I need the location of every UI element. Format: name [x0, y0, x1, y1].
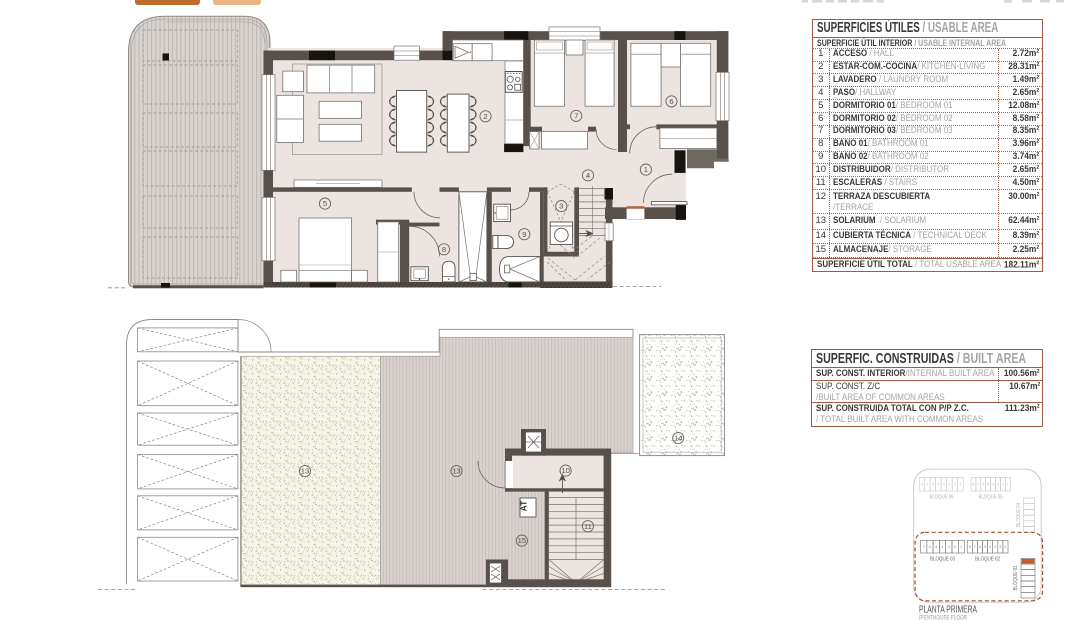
svg-text:3: 3 [994, 545, 996, 549]
svg-text:3: 3 [949, 483, 951, 487]
svg-text:15: 15 [518, 536, 526, 545]
svg-text:(PENTHOUSE FLOOR: (PENTHOUSE FLOOR [919, 615, 967, 620]
svg-text:8: 8 [969, 545, 971, 549]
svg-text:7: 7 [974, 545, 976, 549]
svg-text:2: 2 [1002, 483, 1004, 487]
svg-text:5: 5 [938, 483, 940, 487]
svg-text:8: 8 [973, 483, 975, 487]
svg-text:13: 13 [452, 467, 460, 476]
svg-text:5: 5 [935, 545, 937, 549]
svg-text:5: 5 [323, 199, 327, 208]
svg-text:14: 14 [674, 434, 682, 443]
svg-text:1: 1 [1005, 545, 1007, 549]
svg-text:1: 1 [644, 165, 648, 174]
svg-text:8: 8 [921, 483, 923, 487]
svg-text:2: 2 [954, 483, 956, 487]
svg-text:1: 1 [1007, 483, 1009, 487]
svg-text:8: 8 [442, 245, 446, 254]
svg-text:BLOQUE 05: BLOQUE 05 [979, 495, 1003, 501]
svg-text:6: 6 [929, 545, 931, 549]
svg-text:11: 11 [584, 522, 592, 531]
svg-text:AT: AT [519, 500, 529, 512]
svg-text:BLOQUE 02: BLOQUE 02 [975, 557, 1000, 563]
svg-text:13: 13 [301, 467, 309, 476]
svg-text:2: 2 [999, 545, 1001, 549]
svg-text:1: 1 [960, 483, 962, 487]
svg-text:7: 7 [923, 545, 925, 549]
svg-text:3: 3 [948, 545, 950, 549]
svg-text:10: 10 [561, 466, 569, 475]
svg-text:2: 2 [954, 545, 956, 549]
svg-text:BLOQUE 03: BLOQUE 03 [930, 557, 955, 563]
svg-text:BLOQUE 01: BLOQUE 01 [1013, 565, 1019, 590]
svg-text:1: 1 [961, 545, 963, 549]
svg-text:7: 7 [977, 483, 979, 487]
svg-text:3: 3 [997, 483, 999, 487]
svg-text:3: 3 [559, 202, 563, 211]
svg-text:4: 4 [992, 483, 994, 487]
svg-text:4: 4 [586, 171, 590, 180]
svg-text:6: 6 [979, 545, 981, 549]
svg-text:5: 5 [984, 545, 986, 549]
svg-text:4: 4 [942, 545, 944, 549]
svg-text:4: 4 [943, 483, 945, 487]
svg-text:9: 9 [522, 230, 526, 239]
svg-text:4: 4 [989, 545, 991, 549]
svg-text:6: 6 [982, 483, 984, 487]
svg-text:2: 2 [483, 112, 487, 121]
svg-text:7: 7 [574, 112, 578, 121]
svg-text:5: 5 [987, 483, 989, 487]
svg-text:6: 6 [669, 97, 673, 106]
svg-text:BLOQUE 04: BLOQUE 04 [1016, 503, 1022, 527]
svg-text:BLOQUE 06: BLOQUE 06 [930, 495, 954, 501]
svg-text:6: 6 [932, 483, 934, 487]
svg-text:7: 7 [927, 483, 929, 487]
